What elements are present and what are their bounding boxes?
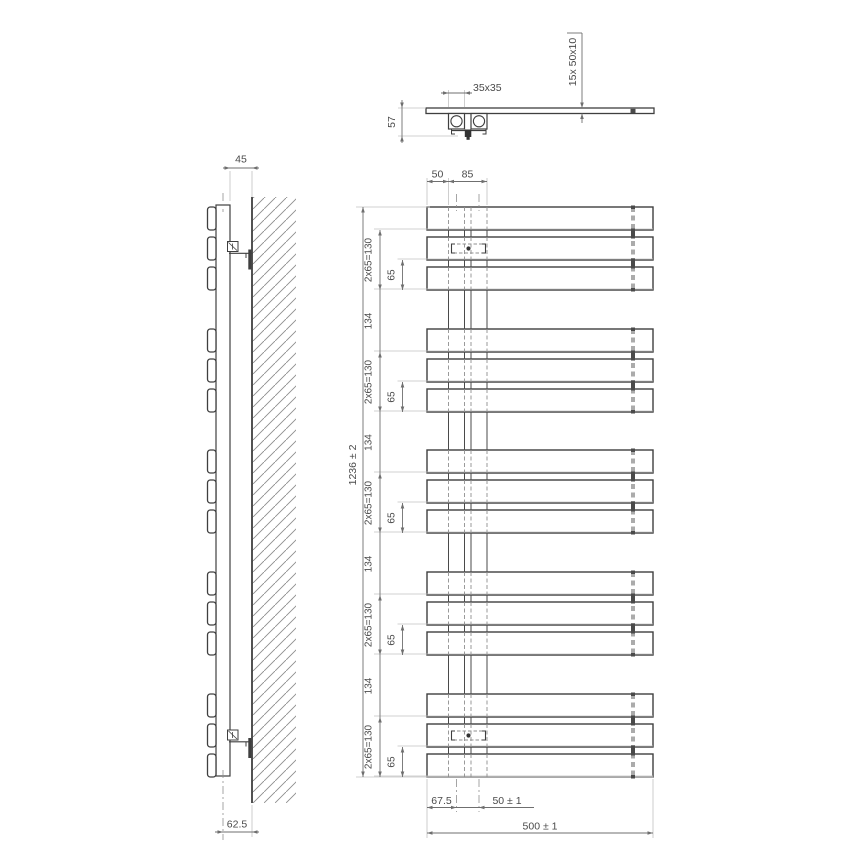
wall-bracket-plate [248, 250, 251, 270]
wall-bracket-plate [248, 738, 251, 758]
dim-arrow [378, 717, 382, 723]
fixing-point-dot [466, 733, 470, 737]
radiator-bar [427, 694, 653, 717]
bar-end-side [208, 724, 217, 747]
bar-end-side [208, 510, 217, 533]
dim-arrow [225, 166, 231, 170]
dim-label-depth: 57 [386, 116, 398, 128]
dim-arrow [400, 136, 404, 142]
dim-arrow [648, 831, 654, 835]
dim-label-group-gap: 134 [364, 555, 375, 572]
bar-end-side [208, 632, 217, 655]
radiator-bar [427, 237, 653, 260]
dim-arrow [465, 91, 471, 95]
dim-arrow [401, 503, 405, 509]
dim-label-group-gap: 134 [364, 677, 375, 694]
bar-end-side [208, 267, 217, 290]
dim-arrow [252, 830, 258, 834]
dim-label-group-span: 2x65=130 [364, 480, 375, 525]
dim-label-bar-spacing: 65 [387, 756, 398, 768]
dim-arrow [443, 91, 449, 95]
dim-arrow [252, 166, 258, 170]
dim-label-bar-spacing: 65 [387, 634, 398, 646]
dim-arrow [400, 103, 404, 109]
bar-end-side [208, 329, 217, 352]
dim-label-left-margin: 67.5 [431, 795, 452, 807]
bar-end-side [208, 694, 217, 717]
bar-end-side [208, 480, 217, 503]
dim-arrow [482, 180, 488, 184]
dim-arrow [361, 772, 365, 778]
radiator-bar [427, 207, 653, 230]
right-connector-top-mark [631, 109, 636, 113]
wall-hatch [252, 197, 296, 803]
bar-end-side [208, 450, 217, 473]
dim-label-group-span: 2x65=130 [364, 237, 375, 282]
dim-label-group-gap: 134 [364, 312, 375, 329]
bar-end-side [208, 359, 217, 382]
bracket-anchor-tip [467, 137, 470, 140]
dim-arrow [378, 352, 382, 358]
dim-arrow [361, 207, 365, 213]
dim-label-group-span: 2x65=130 [364, 359, 375, 404]
dim-label-bar-spacing: 65 [387, 512, 398, 524]
radiator-bar [427, 724, 653, 747]
drawing-canvas: 35x355715x 50x1050851236 ± 22x65=1302x65… [0, 0, 868, 868]
radiator-bar [427, 480, 653, 503]
collector-pipe-side [216, 205, 230, 776]
dim-arrow [427, 831, 433, 835]
radiator-bar [427, 510, 653, 533]
dim-arrow [449, 180, 455, 184]
bar-top-view [426, 108, 654, 114]
radiator-bar [427, 572, 653, 595]
dim-label-group-span: 2x65=130 [364, 724, 375, 769]
dim-label-bracket-size: 35x35 [473, 82, 502, 94]
bracket-anchor-block [465, 130, 472, 138]
fixing-point-dot [466, 246, 470, 250]
bar-end-side [208, 207, 217, 230]
dim-label-group-span: 2x65=130 [364, 602, 375, 647]
dim-arrow [580, 114, 584, 120]
bar-end-side [208, 602, 217, 625]
dim-arrow [218, 830, 224, 834]
dim-label-pipe-span: 85 [462, 169, 474, 181]
bar-end-side [208, 572, 217, 595]
dim-arrow [451, 806, 457, 810]
technical-drawing: 35x355715x 50x1050851236 ± 22x65=1302x65… [0, 0, 868, 868]
front-view [356, 206, 653, 779]
dim-arrow [401, 260, 405, 266]
radiator-bar [427, 267, 653, 290]
radiator-bar [427, 754, 653, 777]
radiator-bar [427, 602, 653, 625]
dim-label-pipe-pitch: 50 ± 1 [492, 795, 521, 807]
dim-label-pipe-offset: 50 [432, 169, 444, 181]
dim-arrow [378, 595, 382, 601]
top-view [426, 108, 654, 140]
dim-arrow [401, 382, 405, 388]
dim-arrow [443, 180, 449, 184]
radiator-bar [427, 359, 653, 382]
radiator-bar [427, 450, 653, 473]
dim-arrow [580, 103, 584, 109]
bar-end-side [208, 389, 217, 412]
dim-label-bar-spacing: 65 [387, 269, 398, 281]
bar-end-side [208, 237, 217, 260]
dim-label-wall-gap: 45 [235, 154, 247, 166]
dim-label-axis-depth: 62.5 [227, 819, 248, 831]
dim-arrow [401, 625, 405, 631]
dim-label-bar-spacing: 65 [387, 391, 398, 403]
dim-arrow [378, 230, 382, 236]
dim-arrow [479, 806, 485, 810]
dim-label-group-gap: 134 [364, 434, 375, 451]
bar-end-side [208, 754, 217, 777]
side-view [208, 193, 297, 840]
dim-label-total-width: 500 ± 1 [523, 821, 558, 833]
dim-arrow [401, 747, 405, 753]
radiator-bar [427, 632, 653, 655]
dim-label-total-height: 1236 ± 2 [347, 444, 359, 485]
dim-arrow [378, 473, 382, 479]
dim-label-profile: 15x 50x10 [567, 38, 579, 87]
radiator-bar [427, 329, 653, 352]
radiator-bar [427, 389, 653, 412]
